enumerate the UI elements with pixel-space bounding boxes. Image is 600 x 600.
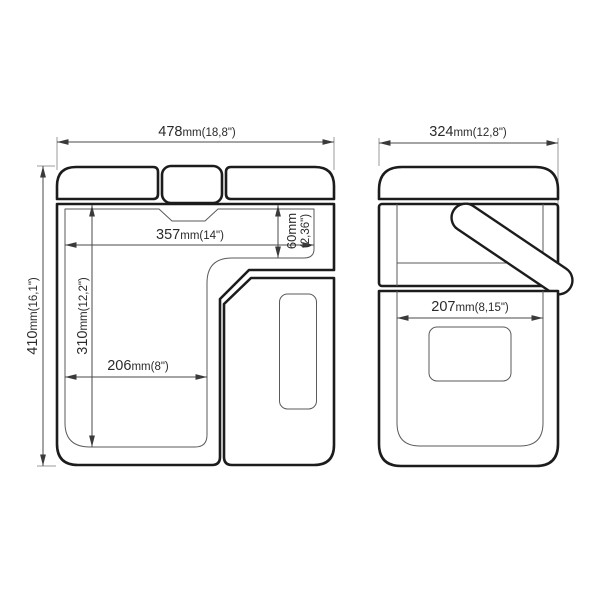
front-lid-left <box>57 167 158 199</box>
dim-shelf-depth-label: 60mm(2,36") <box>284 213 312 249</box>
dim-side-width-label: 324mm(12,8") <box>429 124 507 140</box>
dim-side-inner-width-label: 207mm(8,15") <box>431 299 509 315</box>
dim-inner-lower-width-label: 206mm(8") <box>107 358 169 374</box>
front-view: 478mm(18,8") 410mm(16,1") 357mm(14") 60m… <box>25 124 334 466</box>
dim-inner-height-label: 310mm(12,2") <box>75 277 91 355</box>
dim-front-height-label: 410mm(16,1") <box>25 277 41 355</box>
front-lid-right <box>226 167 334 199</box>
front-lid-latch <box>162 166 222 203</box>
dim-inner-width-label: 357mm(14") <box>156 227 224 243</box>
side-view: 324mm(12,8") 207mm(8,15") <box>379 124 578 466</box>
dim-front-width-label: 478mm(18,8") <box>158 124 236 140</box>
drawing-canvas: 478mm(18,8") 410mm(16,1") 357mm(14") 60m… <box>0 0 600 600</box>
side-lower-body <box>379 291 558 466</box>
side-lid <box>379 167 558 199</box>
dimension-drawing: 478mm(18,8") 410mm(16,1") 357mm(14") 60m… <box>0 0 600 600</box>
